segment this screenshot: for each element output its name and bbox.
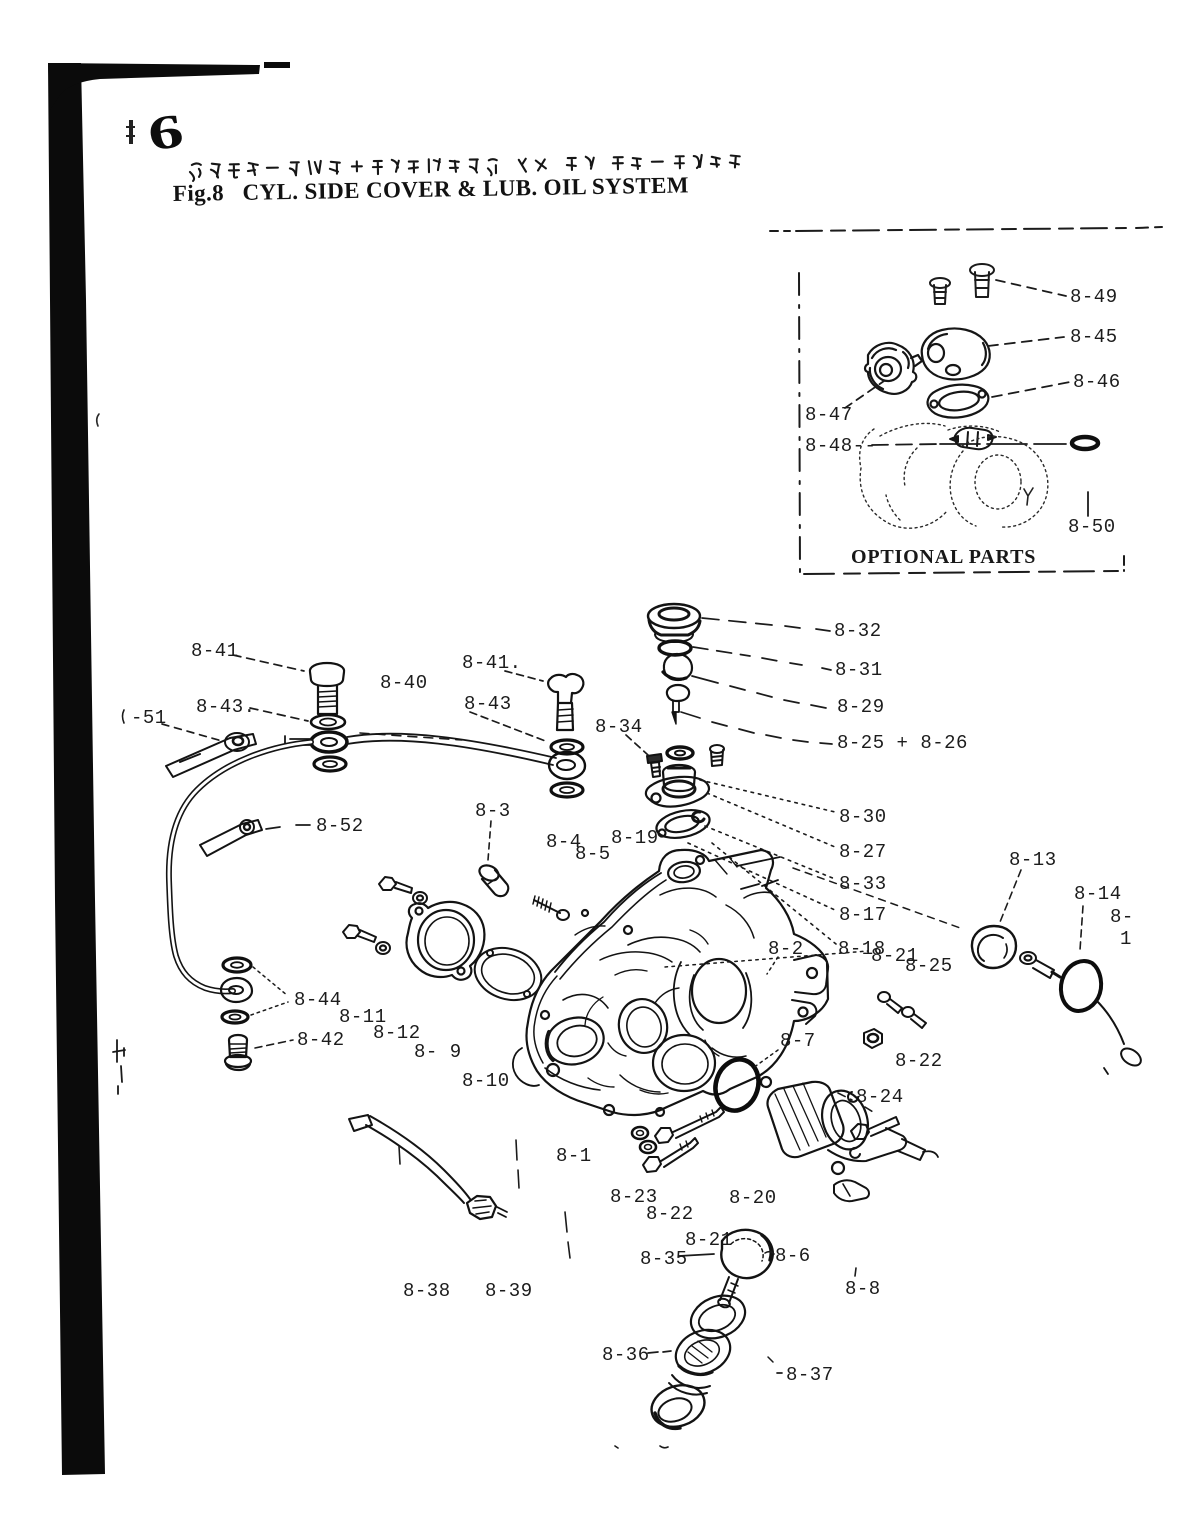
- svg-text:8-50: 8-50: [1068, 516, 1116, 538]
- svg-text:8-44: 8-44: [294, 989, 342, 1011]
- svg-text:8-7: 8-7: [780, 1030, 816, 1052]
- svg-text:8-25: 8-25: [905, 955, 953, 977]
- svg-text:8-22: 8-22: [895, 1050, 943, 1072]
- svg-text:8-37: 8-37: [786, 1364, 834, 1386]
- svg-text:8-1: 8-1: [556, 1145, 592, 1167]
- svg-text:8-48--: 8-48--: [805, 435, 876, 457]
- svg-text:8-14: 8-14: [1074, 883, 1122, 905]
- svg-text:8-13: 8-13: [1009, 849, 1057, 871]
- svg-text:8-20: 8-20: [729, 1187, 777, 1209]
- svg-text:8-29: 8-29: [837, 696, 885, 718]
- svg-text:8-45: 8-45: [1070, 326, 1118, 348]
- svg-text:8-19: 8-19: [611, 827, 659, 849]
- svg-text:-51: -51: [131, 707, 167, 729]
- svg-text:8-40: 8-40: [380, 672, 428, 694]
- svg-text:8-41: 8-41: [191, 640, 239, 662]
- svg-text:8-17: 8-17: [839, 904, 887, 926]
- svg-text:8-35: 8-35: [640, 1248, 688, 1270]
- svg-text:6: 6: [145, 104, 187, 161]
- svg-text:8-30: 8-30: [839, 806, 887, 828]
- svg-text:8-39: 8-39: [485, 1280, 533, 1302]
- svg-text:8-21: 8-21: [685, 1229, 733, 1251]
- svg-text:8-38: 8-38: [403, 1280, 451, 1302]
- svg-text:8-10: 8-10: [462, 1070, 510, 1092]
- svg-text:8-41.: 8-41.: [462, 652, 522, 674]
- svg-text:8-27: 8-27: [839, 841, 887, 863]
- svg-text:8-8: 8-8: [845, 1278, 881, 1300]
- svg-text:8-6: 8-6: [775, 1245, 811, 1267]
- svg-text:8- 9: 8- 9: [414, 1041, 462, 1063]
- svg-text:8-: 8-: [1110, 906, 1134, 928]
- svg-text:8-36: 8-36: [602, 1344, 650, 1366]
- svg-text:8-52: 8-52: [316, 815, 364, 837]
- svg-text:OPTIONAL PARTS: OPTIONAL PARTS: [851, 546, 1036, 568]
- svg-text:8-22: 8-22: [646, 1203, 694, 1225]
- svg-text:8-33: 8-33: [839, 873, 887, 895]
- svg-text:1: 1: [1120, 928, 1132, 950]
- svg-text:8-3: 8-3: [475, 800, 511, 822]
- svg-text:Fig.8 CYL. SIDE COVER & LUB.: Fig.8 CYL. SIDE COVER & LUB. OIL SYSTEM: [173, 172, 689, 206]
- svg-text:8-46: 8-46: [1073, 371, 1121, 393]
- svg-text:8-34: 8-34: [595, 716, 643, 738]
- svg-text:8-31: 8-31: [835, 659, 883, 681]
- svg-text:8-25 + 8-26: 8-25 + 8-26: [837, 732, 968, 754]
- svg-text:8-32: 8-32: [834, 620, 882, 642]
- svg-text:8-43.: 8-43.: [196, 696, 256, 718]
- svg-text:8-42: 8-42: [297, 1029, 345, 1051]
- svg-text:8-5: 8-5: [575, 843, 611, 865]
- svg-text:8-49: 8-49: [1070, 286, 1118, 308]
